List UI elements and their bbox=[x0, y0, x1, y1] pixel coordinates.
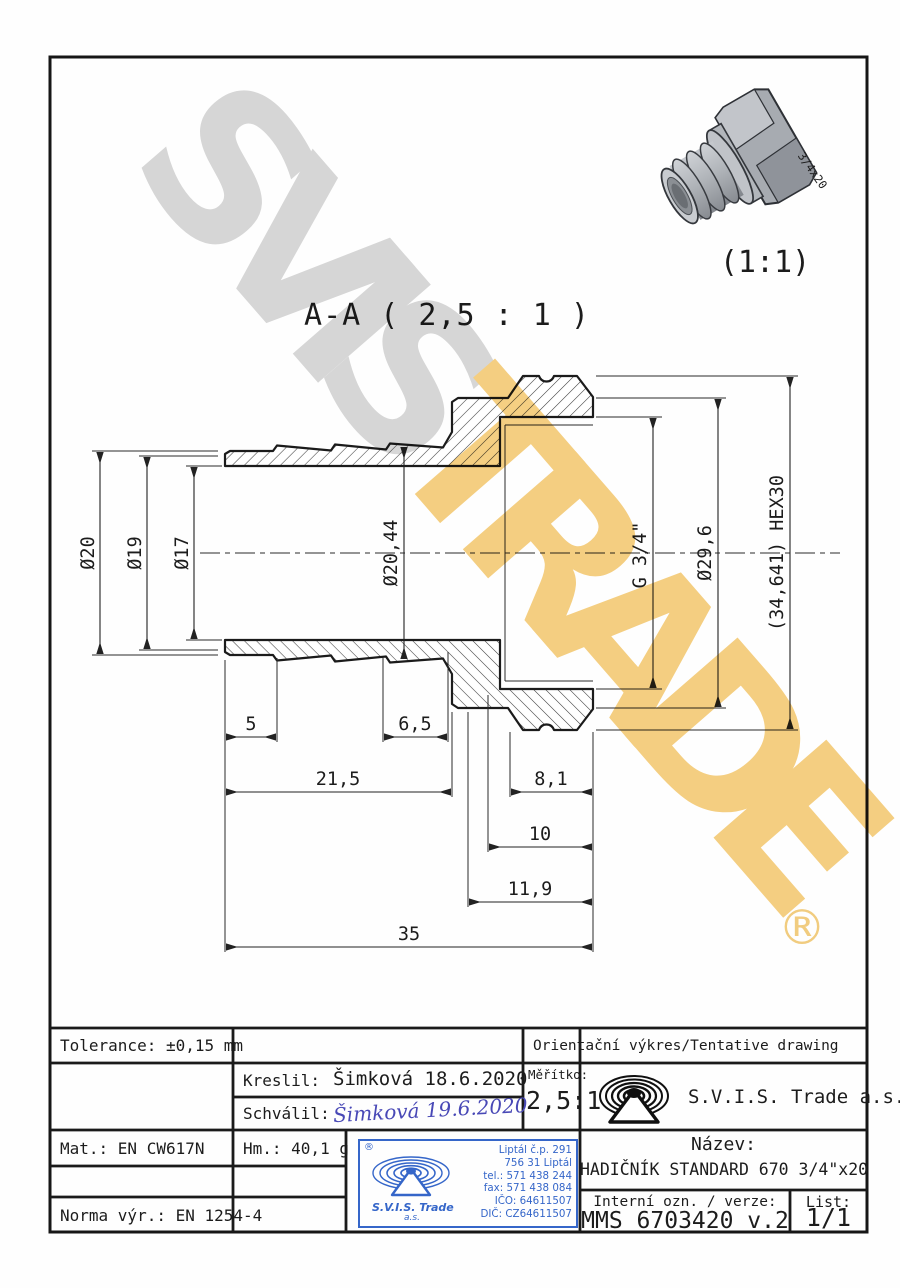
drawing-type-text: Orientační výkres/Tentative drawing bbox=[533, 1038, 839, 1054]
dim-od296: Ø29,6 bbox=[695, 525, 716, 581]
dim-215: 21,5 bbox=[316, 769, 361, 790]
dim-g34: G 3/4" bbox=[630, 522, 651, 589]
nazev-value: HADIČNÍK STANDARD 670 3/4"x20 bbox=[580, 1160, 867, 1179]
dim-od2044: Ø20,44 bbox=[381, 520, 402, 587]
company-logo bbox=[600, 1076, 668, 1122]
stamp-as: a.s. bbox=[404, 1213, 420, 1223]
dim-10: 10 bbox=[529, 824, 551, 845]
pictorial-scale-label: (1:1) bbox=[720, 245, 810, 280]
dim-119: 11,9 bbox=[508, 879, 553, 900]
nazev-label: Název: bbox=[580, 1134, 867, 1155]
stamp-line: DIČ: CZ64611507 bbox=[480, 1208, 572, 1221]
dimension-labels: Ø20 Ø19 Ø17 Ø20,44 G 3/4" Ø29,6 (34,641)… bbox=[78, 475, 788, 945]
interni-value: MMS 6703420 v.2 bbox=[580, 1208, 790, 1234]
drawing-sheet: Ø20 Ø19 Ø17 Ø20,44 G 3/4" Ø29,6 (34,641)… bbox=[0, 0, 900, 1288]
material-text: Mat.: EN CW617N bbox=[60, 1139, 205, 1158]
stamp-line: fax: 571 438 084 bbox=[480, 1182, 572, 1195]
section-wall-top bbox=[225, 376, 593, 466]
dim-od19: Ø19 bbox=[125, 536, 146, 569]
stamp-registered-icon: ® bbox=[364, 1142, 374, 1153]
meritko-label: Měřítko: bbox=[528, 1067, 588, 1082]
stamp-logo bbox=[368, 1153, 454, 1199]
stamp-address: Liptál č.p. 291 756 31 Liptál tel.: 571 … bbox=[480, 1144, 572, 1221]
dim-5: 5 bbox=[245, 714, 256, 735]
section-view bbox=[200, 376, 840, 730]
schvalil-label: Schválil: bbox=[243, 1104, 330, 1123]
company-name: S.V.I.S. Trade a.s. bbox=[688, 1086, 900, 1108]
dim-81: 8,1 bbox=[534, 769, 567, 790]
stamp-line: IČO: 64611507 bbox=[480, 1195, 572, 1208]
list-value: 1/1 bbox=[790, 1203, 867, 1232]
tolerance-text: Tolerance: ±0,15 mm bbox=[60, 1036, 243, 1055]
stamp-line: tel.: 571 438 244 bbox=[480, 1170, 572, 1183]
dim-hex30: (34,641) HEX30 bbox=[767, 475, 788, 631]
dim-65: 6,5 bbox=[398, 714, 431, 735]
norma-text: Norma výr.: EN 1254-4 bbox=[60, 1206, 262, 1225]
stamp-line: 756 31 Liptál bbox=[480, 1157, 572, 1170]
meritko-value: 2,5:1 bbox=[526, 1086, 601, 1115]
dim-od17: Ø17 bbox=[172, 536, 193, 569]
dim-35: 35 bbox=[398, 924, 420, 945]
stamp-line: Liptál č.p. 291 bbox=[480, 1144, 572, 1157]
kreslil-value: Šimková 18.6.2020 bbox=[333, 1068, 527, 1090]
mass-text: Hm.: 40,1 g bbox=[243, 1139, 349, 1158]
section-title: A-A ( 2,5 : 1 ) bbox=[304, 298, 590, 333]
pictorial-3d-part: 3/4x20 bbox=[643, 80, 831, 258]
kreslil-label: Kreslil: bbox=[243, 1071, 320, 1090]
dim-od20: Ø20 bbox=[78, 536, 99, 569]
company-stamp: ® S.V.I.S. Trade a.s. Liptál č.p. 291 75… bbox=[358, 1139, 578, 1228]
